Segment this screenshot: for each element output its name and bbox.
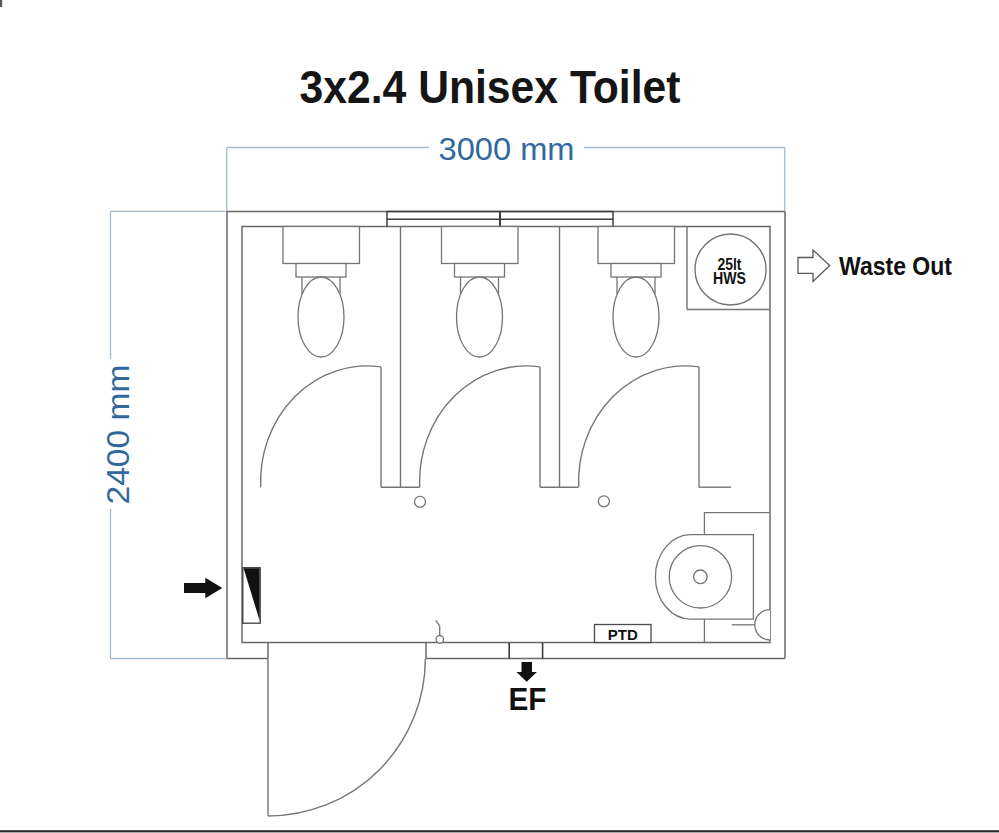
svg-text:HWS: HWS xyxy=(713,270,746,287)
svg-text:PTD: PTD xyxy=(608,626,638,643)
svg-text:EF: EF xyxy=(509,682,547,717)
svg-text:3x2.4 Unisex Toilet: 3x2.4 Unisex Toilet xyxy=(300,61,681,113)
svg-text:3000 mm: 3000 mm xyxy=(439,131,575,167)
svg-text:2400 mm: 2400 mm xyxy=(100,365,136,505)
svg-text:Waste Out: Waste Out xyxy=(839,251,952,281)
